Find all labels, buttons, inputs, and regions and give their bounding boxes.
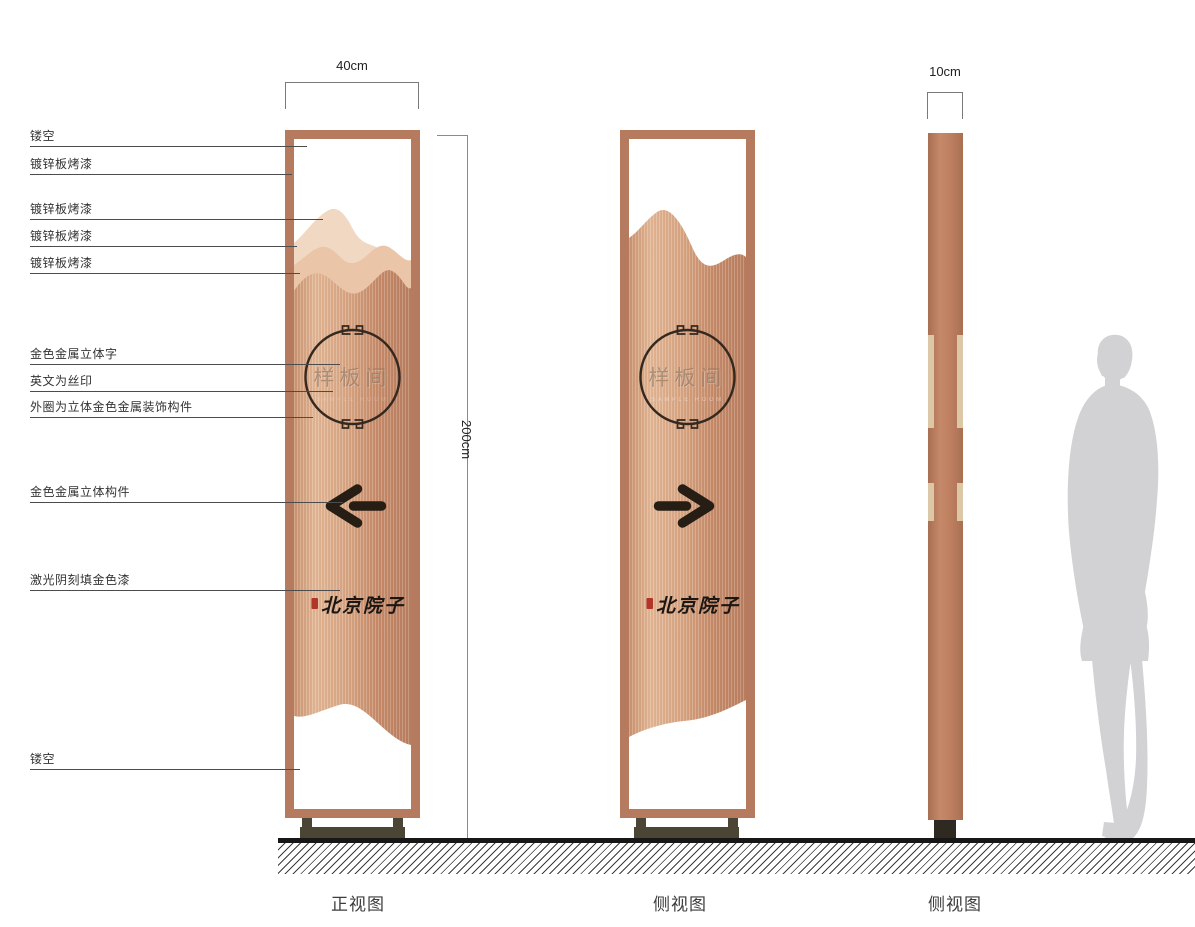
callout-label: 镀锌板烤漆: [30, 254, 93, 271]
callout-label: 外圈为立体金色金属装饰构件: [30, 398, 193, 415]
side-metal-strip: [928, 335, 934, 428]
dim-height-line: [467, 135, 468, 838]
sign-side-a-frame: 样板间 样板间 SAMPLE ROOM 北京院子: [620, 130, 755, 818]
callout-label: 镀锌板烤漆: [30, 155, 93, 172]
callout-english-silkscreen: 英文为丝印: [30, 374, 333, 392]
callout-gold-letters: 金色金属立体字: [30, 347, 340, 365]
view-label-side-b: 侧视图: [928, 890, 982, 915]
sign-body-texture: [629, 210, 746, 737]
brand-text: 北京院子: [656, 595, 740, 617]
callout-galvanized-4: 镀锌板烤漆: [30, 256, 300, 274]
dim-front-width: 40cm: [336, 58, 368, 73]
brand-calligraphy: 北京院子: [312, 595, 406, 617]
side-profile-bar: [928, 133, 963, 820]
callout-galvanized-3: 镀锌板烤漆: [30, 229, 297, 247]
side-metal-strip: [957, 335, 963, 428]
sign-front-artwork: 样板间 样板间 SAMPLE ROOM 北京院子: [294, 139, 411, 809]
callout-label: 激光阴刻填金色漆: [30, 571, 130, 588]
view-label-side-a: 侧视图: [653, 890, 707, 915]
circle-english-text: SAMPLE ROOM: [316, 397, 388, 403]
seal-stamp-icon: [312, 598, 319, 609]
dim-side-depth-bracket: [927, 92, 963, 119]
side-metal-strip: [928, 483, 934, 521]
callout-label: 金色金属立体构件: [30, 483, 130, 500]
brand-text: 北京院子: [321, 595, 405, 617]
callout-laser-engrave: 激光阴刻填金色漆: [30, 573, 340, 591]
callout-label: 英文为丝印: [30, 372, 93, 389]
brand-calligraphy: 北京院子: [647, 595, 741, 617]
callout-galvanized-1: 镀锌板烤漆: [30, 157, 292, 175]
view-label-front: 正视图: [331, 890, 385, 915]
dim-front-width-bracket: [285, 82, 419, 109]
callout-label: 镂空: [30, 127, 55, 144]
callout-label: 金色金属立体字: [30, 345, 118, 362]
human-scale-silhouette: [1032, 334, 1182, 839]
callout-label: 镀锌板烤漆: [30, 227, 93, 244]
callout-gold-component: 金色金属立体构件: [30, 485, 343, 503]
sign-side-a-artwork: 样板间 样板间 SAMPLE ROOM 北京院子: [629, 139, 746, 809]
ground-hatch: [278, 843, 1195, 874]
sign-front-frame: 样板间 样板间 SAMPLE ROOM 北京院子: [285, 130, 420, 818]
callout-galvanized-2: 镀锌板烤漆: [30, 202, 323, 220]
drawing-canvas: 镂空 镀锌板烤漆 镀锌板烤漆 镀锌板烤漆 镀锌板烤漆 金色金属立体字 英文为丝印…: [0, 0, 1195, 927]
dim-height: 200cm: [459, 420, 474, 459]
callout-hollow-bottom: 镂空: [30, 752, 300, 770]
circle-text: 样板间: [649, 367, 727, 390]
side-metal-strip: [957, 483, 963, 521]
circle-english-text: SAMPLE ROOM: [651, 397, 723, 403]
callout-label: 镂空: [30, 750, 55, 767]
ground-line: [278, 838, 1195, 843]
callout-label: 镀锌板烤漆: [30, 200, 93, 217]
dim-height-tick: [437, 135, 467, 136]
dim-side-depth: 10cm: [929, 64, 961, 79]
callout-hollow-top: 镂空: [30, 129, 307, 147]
seal-stamp-icon: [647, 598, 654, 609]
callout-outer-ring: 外圈为立体金色金属装饰构件: [30, 400, 313, 418]
side-base-foot: [934, 818, 956, 840]
